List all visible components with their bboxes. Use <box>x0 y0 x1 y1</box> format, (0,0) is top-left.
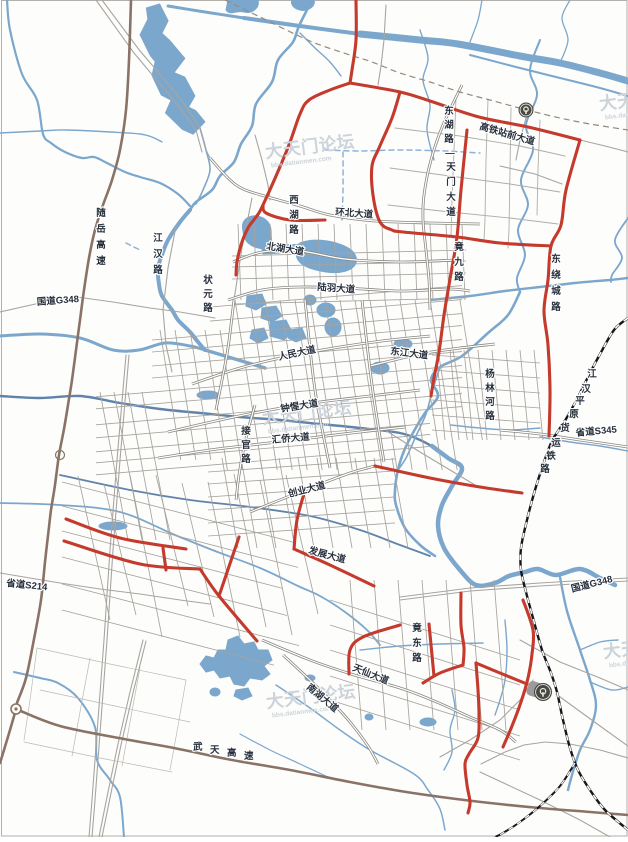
svg-text:路: 路 <box>485 410 495 422</box>
svg-text:汉: 汉 <box>153 248 163 260</box>
svg-text:高: 高 <box>96 239 106 251</box>
svg-text:速: 速 <box>244 750 254 762</box>
svg-text:湖: 湖 <box>289 209 299 221</box>
svg-text:—: — <box>445 148 455 159</box>
svg-text:湖: 湖 <box>444 119 454 131</box>
svg-text:状: 状 <box>203 274 213 286</box>
svg-text:河: 河 <box>485 396 495 408</box>
svg-text:货: 货 <box>559 422 570 434</box>
svg-text:路: 路 <box>412 652 422 664</box>
svg-text:九: 九 <box>453 256 464 268</box>
svg-text:城: 城 <box>551 285 561 297</box>
svg-text:天: 天 <box>210 745 220 756</box>
svg-text:武: 武 <box>193 741 203 753</box>
svg-text:元: 元 <box>203 289 213 300</box>
svg-text:竟: 竟 <box>411 622 422 634</box>
svg-text:绕: 绕 <box>551 269 561 281</box>
svg-text:路: 路 <box>444 133 454 145</box>
svg-text:门: 门 <box>446 176 456 188</box>
svg-text:路: 路 <box>203 302 213 314</box>
svg-text:江: 江 <box>587 368 597 380</box>
svg-text:路: 路 <box>540 463 550 475</box>
svg-text:大: 大 <box>446 191 456 203</box>
svg-text:速: 速 <box>96 255 106 267</box>
svg-text:运: 运 <box>551 438 561 449</box>
svg-text:东: 东 <box>412 637 422 649</box>
svg-text:天: 天 <box>446 162 456 173</box>
svg-text:西: 西 <box>289 195 299 206</box>
svg-text:平: 平 <box>575 396 585 407</box>
svg-text:江: 江 <box>153 232 163 244</box>
svg-text:杨: 杨 <box>485 368 495 380</box>
svg-text:岳: 岳 <box>96 223 106 235</box>
svg-text:原: 原 <box>569 409 579 420</box>
svg-text:汉: 汉 <box>581 383 591 395</box>
svg-text:高: 高 <box>227 747 237 759</box>
svg-text:东: 东 <box>444 105 454 117</box>
svg-text:接: 接 <box>241 425 251 437</box>
svg-text:路: 路 <box>241 453 251 465</box>
svg-text:路: 路 <box>153 264 163 276</box>
svg-text:道: 道 <box>446 206 456 218</box>
svg-text:东: 东 <box>551 253 561 265</box>
svg-text:路: 路 <box>289 224 299 236</box>
svg-text:随: 随 <box>96 207 106 219</box>
svg-text:路: 路 <box>454 271 464 283</box>
svg-text:竟: 竟 <box>453 241 464 253</box>
svg-text:铁: 铁 <box>546 450 556 462</box>
svg-text:林: 林 <box>485 382 495 394</box>
svg-text:官: 官 <box>241 439 251 451</box>
svg-text:路: 路 <box>551 301 561 313</box>
